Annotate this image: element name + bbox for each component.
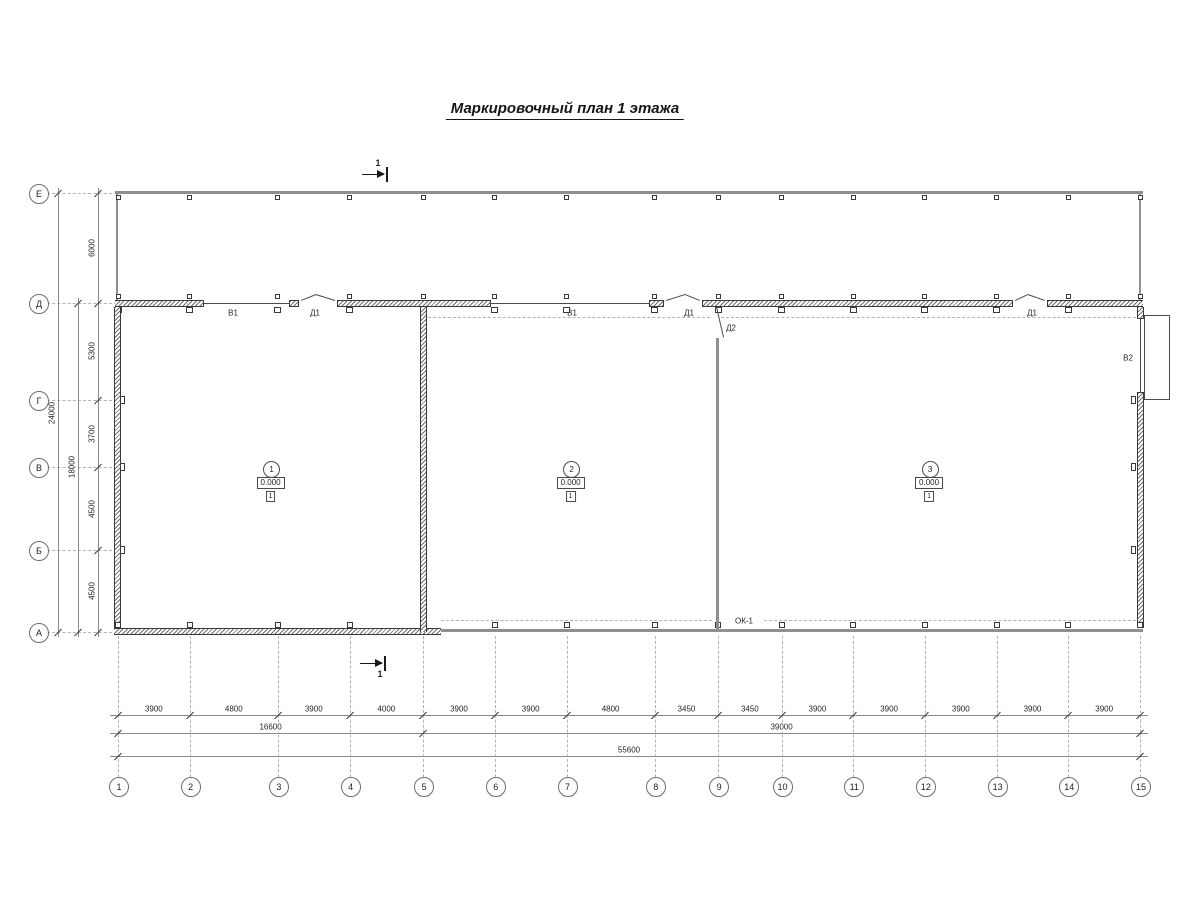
column-axis-bubble: 1 [109,777,129,797]
dim-line-col-total [110,756,1148,757]
column-marker [716,195,721,200]
column-marker [116,195,121,200]
elevation-label: 0.000 [257,477,285,489]
column-axis-bubble: 11 [844,777,864,797]
exterior-wall-right [1137,393,1144,628]
column-marker [275,622,281,628]
floor-type-label: 1 [566,491,576,502]
elevation-label: 0.000 [915,477,943,489]
door-label: Д1 [684,309,694,318]
door-leaf [685,294,700,301]
wall-pilaster [651,307,658,313]
section-label: 1 [377,669,382,679]
column-axis-bubble-label: 4 [348,782,353,792]
dim-label-row-group: 18000 [68,456,77,478]
row-axis-bubble-label: Г [37,396,42,406]
row-axis-bubble-label: Б [36,546,42,556]
dim-label-col-segment: 3900 [450,705,468,714]
column-marker [116,294,121,299]
wall-pilaster [778,307,785,313]
column-axis-bubble: 13 [988,777,1008,797]
column-marker [652,195,657,200]
section-arrow-icon [377,170,385,178]
dim-label-col-segment: 3900 [880,705,898,714]
column-marker [275,195,280,200]
dim-line-row-segments [98,188,99,637]
column-axis-bubble: 7 [558,777,578,797]
floor-type-label: 1 [924,491,934,502]
column-marker [1138,294,1143,299]
door-label: Д1 [1027,309,1037,318]
dim-label-row-segment: 6000 [88,239,97,257]
column-marker [779,294,784,299]
column-axis-bubble: 3 [269,777,289,797]
dim-label-col-segment: 4800 [602,705,620,714]
dim-label-row-total: 24000 [48,401,57,423]
dim-line-row-total [58,188,59,637]
exterior-wall [703,300,1012,307]
room-number: 2 [563,461,580,478]
column-marker [779,622,785,628]
dim-label-col-segment: 3900 [1095,705,1113,714]
column-axis-bubble-label: 8 [653,782,658,792]
column-marker [347,622,353,628]
dim-line-col-segments [110,715,1148,716]
ribbon-window-dash [441,620,712,621]
exterior-wall [290,300,298,307]
window-line [203,303,290,304]
column-marker [564,195,569,200]
row-axis-bubble-label: А [36,628,42,638]
dim-label-row-segment: 3700 [88,425,97,443]
dim-label-col-group: 16600 [257,723,283,732]
column-marker [850,622,856,628]
column-axis-bubble: 4 [341,777,361,797]
floor-type-label: 1 [266,491,276,502]
wall-pilaster [921,307,928,313]
row-axis-bubble: В [29,458,49,478]
row-axis-bubble: Е [29,184,49,204]
column-marker [421,195,426,200]
wall-pilaster [346,307,353,313]
opening-jamb [1137,318,1144,319]
row-axis-bubble-label: В [36,463,42,473]
column-marker [922,622,928,628]
door-label: Д1 [310,309,320,318]
column-axis-bubble-label: 9 [717,782,722,792]
column-marker [492,622,498,628]
door-leaf [316,294,335,301]
column-marker [187,294,192,299]
column-marker [421,294,426,299]
dim-label-col-segment: 3450 [678,705,696,714]
wall-pilaster [1131,546,1136,554]
wall-pilaster [120,463,125,471]
wall-pilaster [1131,463,1136,471]
gate-line [1140,318,1141,393]
column-axis-bubble-label: 14 [1064,782,1074,792]
row-axis-bubble: Г [29,391,49,411]
row-axis-bubble: Д [29,294,49,314]
column-marker [347,294,352,299]
overhang-dash [721,317,1136,318]
wall-pilaster [563,307,570,313]
wall-pilaster [1065,307,1072,313]
dim-line-col-groups [110,733,1148,734]
dim-label-col-segment: 4000 [377,705,395,714]
dim-label-row-segment: 5300 [88,342,97,360]
column-marker [275,294,280,299]
column-axis-bubble-label: 13 [993,782,1003,792]
interior-wall [420,307,427,632]
column-axis-bubble: 6 [486,777,506,797]
column-marker [1137,622,1143,628]
column-marker [922,294,927,299]
column-marker [851,195,856,200]
column-axis-bubble-label: 11 [850,782,859,792]
opening-jamb [337,300,338,307]
elevation-label: 0.000 [557,477,585,489]
wall-pilaster [1131,396,1136,404]
ribbon-window-label: ОК-1 [733,617,755,626]
canopy-edge [115,191,1143,194]
column-axis-bubble-label: 12 [921,782,931,792]
section-arrow-icon [375,659,383,667]
exterior-wall [1048,300,1143,307]
opening-jamb [1012,300,1013,307]
dim-line-row-group [78,298,79,637]
column-marker [851,294,856,299]
column-marker [994,195,999,200]
column-axis-bubble-label: 15 [1136,782,1146,792]
wall-pilaster [850,307,857,313]
door-leaf [666,294,685,301]
opening-jamb [1137,392,1144,393]
exterior-wall [338,300,490,307]
exterior-wall [115,300,203,307]
plan-area: 2400018000600053003700450045003900480039… [0,0,1200,900]
exterior-platform [1144,315,1170,400]
opening-jamb [1047,300,1048,307]
column-axis-bubble: 10 [773,777,793,797]
wall-pilaster [491,307,498,313]
column-marker [115,622,121,628]
column-marker [922,195,927,200]
column-marker [492,195,497,200]
column-marker [492,294,497,299]
column-marker [716,294,721,299]
section-label: 1 [375,158,380,168]
door-leaf [1028,294,1045,301]
column-marker [779,195,784,200]
floor-plan-drawing: Маркировочный план 1 этажа 2400018000600… [0,0,1200,900]
dim-label-row-segment: 4500 [88,582,97,600]
column-marker [347,195,352,200]
column-axis-bubble: 12 [916,777,936,797]
room-number: 1 [263,461,280,478]
opening-jamb [663,300,664,307]
column-marker [564,622,570,628]
door-leaf [301,294,316,301]
column-axis-bubble-label: 5 [422,782,427,792]
wall-pilaster [993,307,1000,313]
dim-label-col-segment: 3450 [741,705,759,714]
column-marker [1066,294,1071,299]
dim-label-col-segment: 3900 [952,705,970,714]
column-axis-bubble: 5 [414,777,434,797]
row-axis-bubble: А [29,623,49,643]
column-marker [994,622,1000,628]
dim-label-col-segment: 3900 [1024,705,1042,714]
section-plane [384,656,386,671]
gate-label: В2 [1123,354,1133,363]
wall-pilaster [274,307,281,313]
door-label: Д2 [726,324,736,333]
wall-pilaster [120,396,125,404]
column-axis-bubble-label: 3 [276,782,281,792]
column-axis-bubble: 15 [1131,777,1151,797]
window-line [490,303,650,304]
column-marker [564,294,569,299]
exterior-wall [650,300,663,307]
column-axis-bubble-label: 10 [778,782,788,792]
column-marker [1065,622,1071,628]
dim-label-col-segment: 4800 [225,705,243,714]
dim-label-col-segment: 3900 [305,705,323,714]
column-axis-bubble: 2 [181,777,201,797]
canopy-edge-right [1139,194,1141,300]
column-axis-bubble-label: 2 [188,782,193,792]
dim-label-row-segment: 4500 [88,500,97,518]
wall-pilaster [120,546,125,554]
row-axis-bubble-label: Е [36,189,42,199]
column-axis-bubble-label: 6 [493,782,498,792]
dim-label-col-total: 55600 [616,746,642,755]
wall-pilaster [186,307,193,313]
column-marker [652,294,657,299]
row-axis-bubble: Б [29,541,49,561]
canopy-edge-left [116,194,118,300]
column-marker [187,195,192,200]
door-leaf [1015,294,1028,301]
column-marker [1066,195,1071,200]
column-axis-bubble: 8 [646,777,666,797]
opening-jamb [702,300,703,307]
column-marker [1138,195,1143,200]
interior-partition [716,338,719,630]
exterior-wall-bottom-light [441,629,1143,632]
dim-label-col-segment: 3900 [809,705,827,714]
column-marker [187,622,193,628]
section-plane [386,167,388,182]
column-axis-bubble-label: 1 [116,782,121,792]
dim-label-col-segment: 3900 [522,705,540,714]
column-axis-bubble-label: 7 [565,782,570,792]
ribbon-window-dash [764,620,1136,621]
window-label: В1 [228,309,238,318]
exterior-wall-right [1137,307,1144,318]
dim-label-col-group: 39000 [768,723,794,732]
column-marker [652,622,658,628]
row-axis-bubble-label: Д [36,299,42,309]
dim-label-col-segment: 3900 [145,705,163,714]
room-number: 3 [922,461,939,478]
column-axis-bubble: 14 [1059,777,1079,797]
column-marker [994,294,999,299]
opening-jamb [298,300,299,307]
column-axis-bubble: 9 [709,777,729,797]
exterior-wall-bottom [114,628,441,635]
